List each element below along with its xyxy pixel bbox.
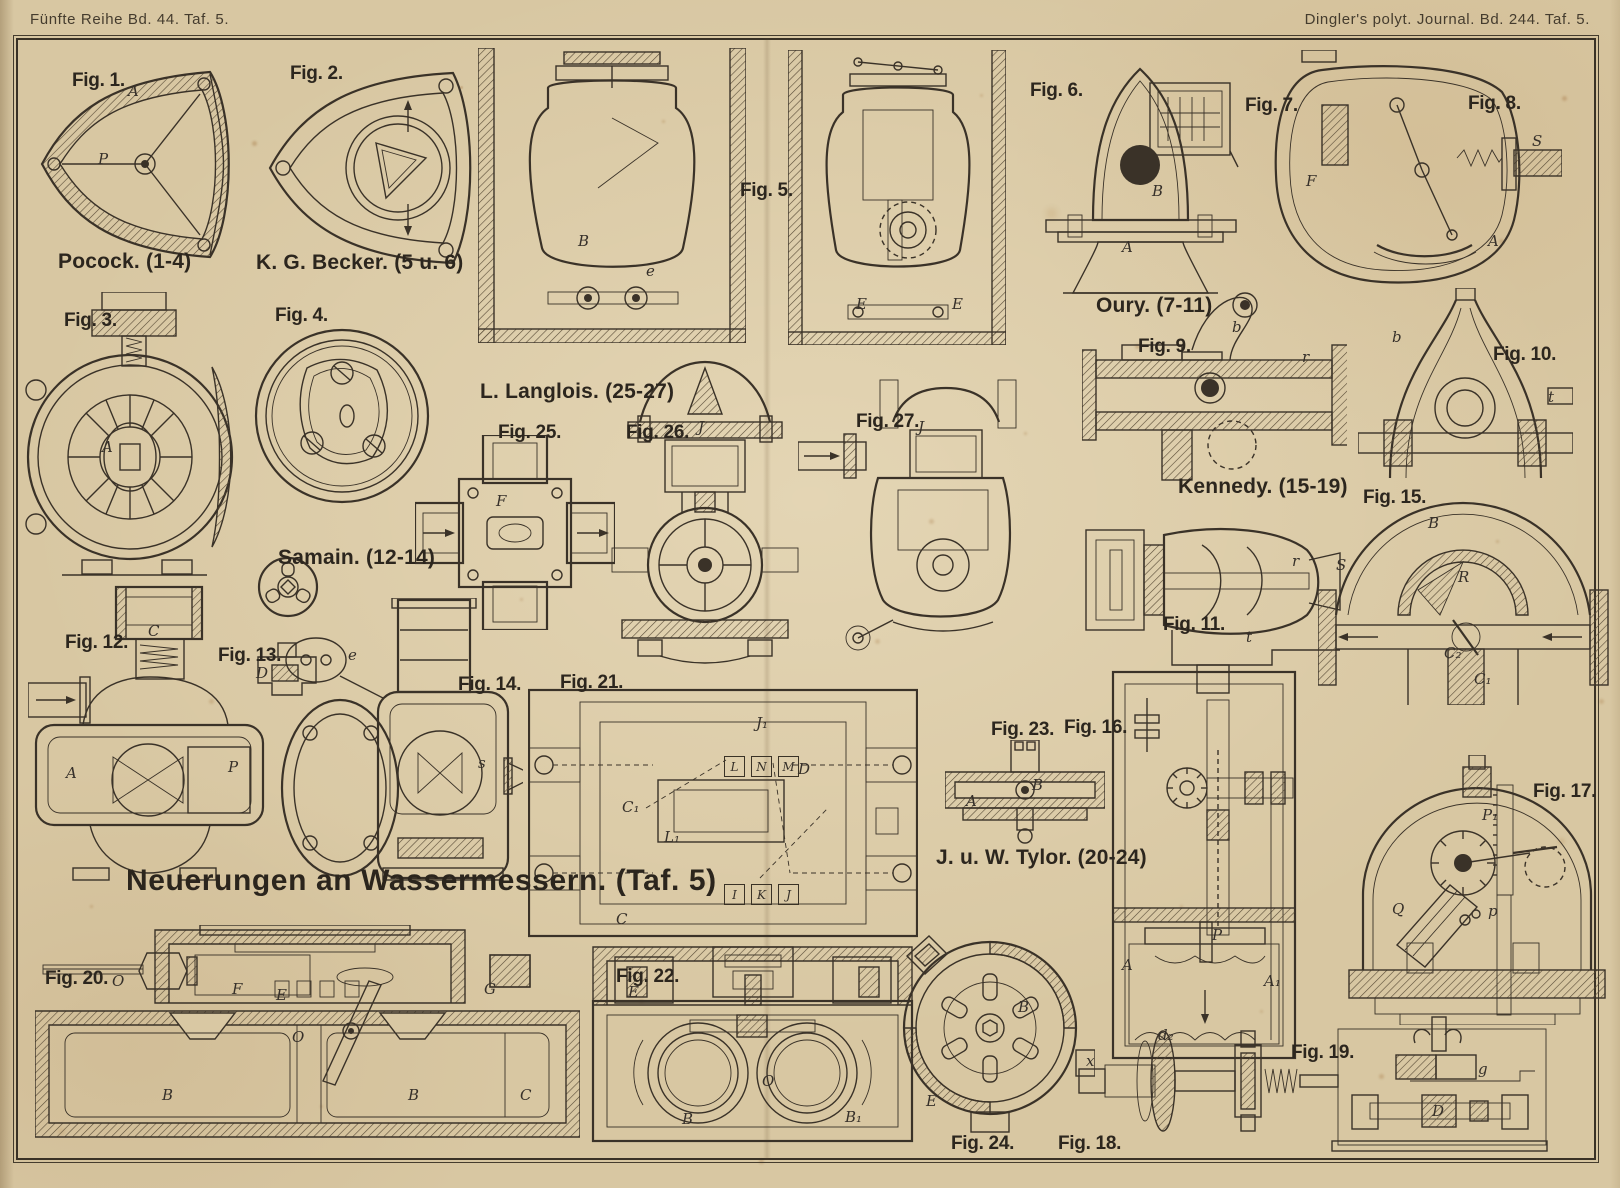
part-label: E: [628, 983, 639, 1001]
part-box: I: [724, 884, 745, 905]
group-label-langlois: L. Langlois. (25-27): [480, 380, 674, 404]
fig23-label: Fig. 23.: [991, 719, 1054, 741]
part-label: P₁: [1482, 806, 1498, 824]
part-box: N: [751, 756, 772, 777]
part-label: O: [292, 1028, 304, 1046]
part-label: P: [228, 758, 238, 776]
part-label: O: [762, 1072, 774, 1090]
part-label: C: [616, 910, 627, 928]
group-label-kennedy: Kennedy. (15-19): [1178, 475, 1348, 499]
part-label: b: [1232, 318, 1242, 336]
fig24-label: Fig. 24.: [951, 1133, 1014, 1155]
part-label: b: [1392, 328, 1402, 346]
foxing-spots: [0, 0, 3, 3]
fig14-label: Fig. 14.: [458, 674, 521, 696]
part-label: F: [1306, 172, 1316, 190]
fig27-label: Fig. 27.: [856, 411, 919, 433]
fig19-label: Fig. 19.: [1291, 1042, 1354, 1064]
part-box: L: [724, 756, 745, 777]
header-left: Fünfte Reihe Bd. 44. Taf. 5.: [30, 11, 229, 28]
part-label: J: [698, 418, 704, 436]
part-label: B: [162, 1086, 173, 1104]
part-label: S: [1336, 556, 1346, 574]
group-label-becker: K. G. Becker. (5 u. 6): [256, 251, 463, 275]
part-label: B: [1152, 182, 1163, 200]
part-label: L₁: [664, 828, 680, 846]
fig4-label: Fig. 4.: [275, 305, 328, 327]
fig27-drawing: [798, 350, 1048, 670]
part-label: G: [484, 980, 496, 998]
part-label: B: [1428, 514, 1439, 532]
fig11-label: Fig. 11.: [1163, 614, 1225, 636]
part-label: D: [256, 664, 268, 682]
fig6-drawing: [788, 50, 1006, 345]
part-label: C: [148, 622, 159, 640]
part-label: E: [952, 295, 963, 313]
fig8-label: Fig. 8.: [1468, 93, 1521, 115]
part-label: Q: [1392, 900, 1404, 918]
fig20-drawing: [35, 925, 580, 1145]
part-label: t: [1548, 388, 1554, 406]
part-label: F: [496, 492, 506, 510]
part-box: M: [778, 756, 799, 777]
part-label: A₁: [1264, 972, 1281, 990]
part-label: A: [66, 764, 77, 782]
header-right: Dingler's polyt. Journal. Bd. 244. Taf. …: [1305, 11, 1590, 28]
plate-title: Neuerungen an Wassermessern. (Taf. 5): [126, 864, 717, 898]
fig10-drawing: [1358, 288, 1573, 483]
fig21-drawing: [528, 688, 918, 938]
fig1-drawing: [30, 52, 255, 277]
fig6-label: Fig. 6.: [1030, 80, 1083, 102]
fig20-label: Fig. 20.: [45, 968, 108, 990]
fig2-label: Fig. 2.: [290, 63, 343, 85]
part-label: C₁: [1474, 670, 1492, 688]
part-label: B: [578, 232, 589, 250]
part-label: F: [232, 980, 242, 998]
fig9-label: Fig. 9.: [1138, 336, 1191, 358]
part-label: P: [1212, 926, 1222, 944]
fig3-drawing: [22, 292, 247, 582]
part-box: K: [751, 884, 772, 905]
part-label: B: [682, 1110, 693, 1128]
part-label: x: [1086, 1052, 1094, 1070]
part-label: E: [856, 295, 867, 313]
part-label: r: [1292, 552, 1299, 570]
part-label: s: [478, 754, 486, 772]
fig19-drawing: [1330, 1015, 1555, 1157]
fig26-label: Fig. 26.: [626, 422, 689, 444]
fig3-label: Fig. 3.: [64, 310, 117, 332]
fig7-label: Fig. 7.: [1245, 95, 1298, 117]
fig4-drawing: [252, 298, 432, 533]
fig1-label: Fig. 1.: [72, 70, 125, 92]
fig15-drawing: [1318, 470, 1610, 705]
part-label: S: [1532, 132, 1542, 150]
part-box: J: [778, 884, 799, 905]
part-label: D: [1432, 1102, 1444, 1120]
part-label: A: [1122, 238, 1133, 256]
fig9-drawing: [1082, 290, 1347, 490]
group-label-oury: Oury. (7-11): [1096, 294, 1212, 318]
fig13-label: Fig. 13.: [218, 645, 281, 667]
fig25-label: Fig. 25.: [498, 422, 561, 444]
fig14-drawing: [278, 598, 523, 883]
group-label-pocock: Pocock. (1-4): [58, 250, 191, 274]
part-label: A: [128, 82, 139, 100]
part-label: e: [348, 646, 357, 664]
part-label: d₂: [1158, 1026, 1174, 1044]
part-label: B: [408, 1086, 419, 1104]
part-label: O: [112, 972, 124, 990]
part-label: J₁: [756, 714, 768, 732]
fig18-label: Fig. 18.: [1058, 1133, 1121, 1155]
fig5-label: Fig. 5.: [740, 180, 793, 202]
fig24-drawing: [885, 930, 1095, 1135]
part-label: A: [102, 438, 113, 456]
fig5-drawing: [478, 48, 746, 343]
part-label: C₁: [622, 798, 640, 816]
part-label: J: [918, 418, 924, 436]
part-label: E: [926, 1092, 937, 1110]
fig22-label: Fig. 22.: [616, 966, 679, 988]
part-label: B: [1018, 998, 1029, 1016]
part-label: P: [98, 150, 108, 168]
part-label: B: [1032, 776, 1043, 794]
part-label: D: [798, 760, 810, 778]
fig10-label: Fig. 10.: [1493, 344, 1556, 366]
fig12-label: Fig. 12.: [65, 632, 128, 654]
fig17-label: Fig. 17.: [1533, 781, 1596, 803]
fig18-drawing: [1075, 1015, 1340, 1135]
part-label: R: [1458, 568, 1469, 586]
group-label-tylor: J. u. W. Tylor. (20-24): [936, 846, 1147, 870]
part-label: C: [520, 1086, 531, 1104]
part-label: p: [1488, 902, 1498, 920]
part-label: A: [966, 792, 977, 810]
part-label: t: [1246, 628, 1252, 646]
part-label: g: [1478, 1060, 1488, 1078]
group-label-samain: Samain. (12-14): [278, 546, 435, 570]
fig21-label: Fig. 21.: [560, 672, 623, 694]
fig15-label: Fig. 15.: [1363, 487, 1426, 509]
fig25-drawing: [415, 435, 615, 630]
part-label: e: [646, 262, 655, 280]
part-label: A: [1122, 956, 1133, 974]
part-label: B₁: [845, 1108, 862, 1126]
fig16-label: Fig. 16.: [1064, 717, 1127, 739]
part-label: C₂: [1444, 644, 1462, 662]
part-label: r: [1302, 348, 1309, 366]
part-label: A: [1488, 232, 1499, 250]
part-label: E: [276, 986, 287, 1004]
engraved-plate: Fünfte Reihe Bd. 44. Taf. 5. Dingler's p…: [0, 0, 1620, 1188]
